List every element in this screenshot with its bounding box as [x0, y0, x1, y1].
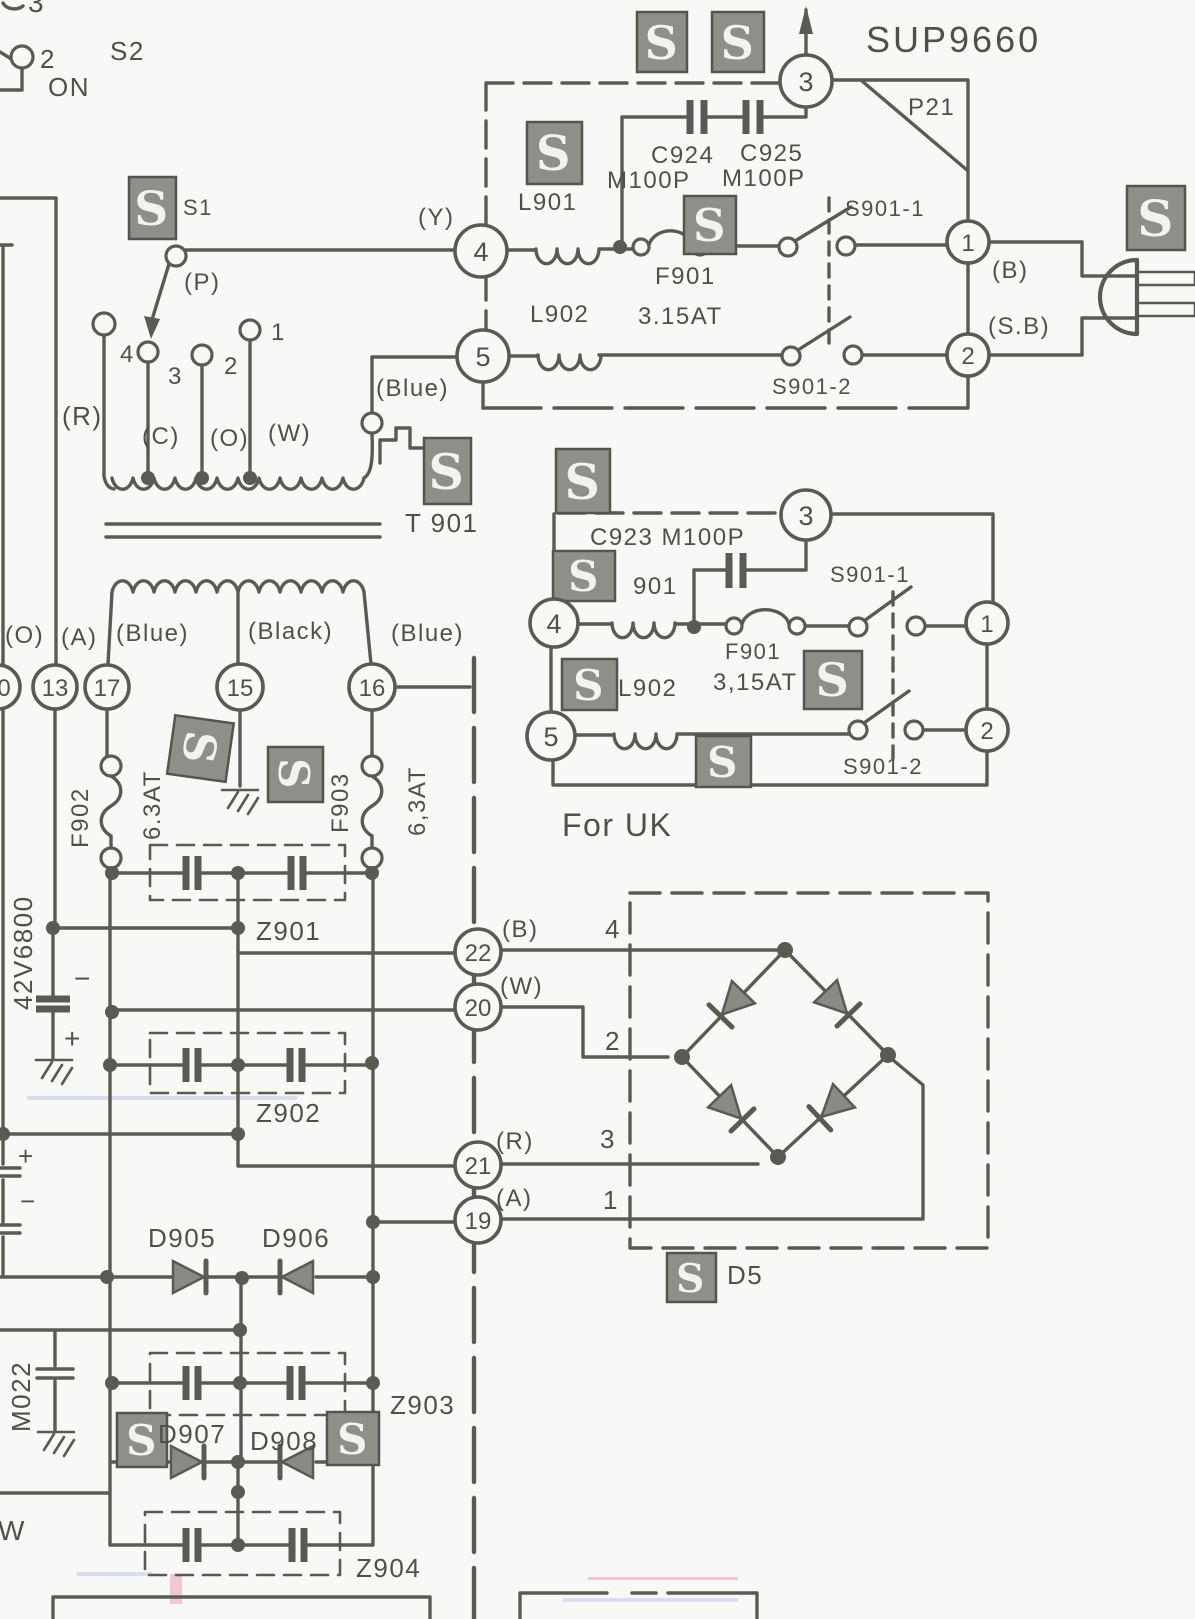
svg-text:S: S — [721, 16, 756, 70]
f903-rating: 6,3AT — [404, 766, 431, 836]
mains-plug-icon — [1100, 260, 1137, 334]
d908-label: D908 — [250, 1426, 318, 1456]
s-badge: S — [696, 736, 751, 787]
sb-wire-label: (S.B) — [988, 313, 1050, 340]
f903-terminal — [362, 756, 382, 776]
uk-s901-1-label: S901-1 — [830, 562, 910, 587]
tap3-label: 3 — [168, 363, 183, 390]
bridge-b-label: (B) — [502, 916, 539, 943]
c924-label: C924 — [651, 142, 714, 169]
svg-text:S: S — [645, 16, 680, 70]
d907-diode-icon — [171, 1446, 204, 1478]
bridge-wires — [500, 950, 923, 1219]
s-badge: S — [712, 12, 764, 72]
f902-rating: 6.3AT — [139, 770, 166, 840]
c925-value: M100P — [722, 165, 806, 192]
s-badge: S — [637, 12, 687, 72]
cap-plus-label: + — [64, 1023, 82, 1054]
s-badge: S — [553, 551, 615, 601]
svg-text:S: S — [568, 552, 600, 601]
bridge-t2-label: 2 — [605, 1026, 621, 1056]
s-badge: S — [562, 659, 617, 710]
switch-contact — [849, 721, 867, 739]
bridge-t1-label: 1 — [603, 1185, 619, 1215]
svg-text:S: S — [171, 728, 226, 768]
uk-pin4: 4 — [546, 609, 561, 639]
p-wire-label: (P) — [184, 269, 221, 296]
switch-contact — [907, 617, 925, 635]
sec-pin16: 16 — [359, 675, 386, 702]
m022-label: M022 — [6, 1361, 36, 1432]
switch-contact — [844, 346, 862, 364]
mains-pin2: 2 — [961, 343, 974, 370]
switch-contact — [782, 347, 800, 365]
d906-diode-icon — [280, 1261, 313, 1293]
tap-terminal-4 — [138, 342, 158, 362]
uk-f901-rating: 3,15AT — [713, 669, 798, 696]
scan-artifact — [170, 1574, 182, 1604]
f902-terminal — [101, 756, 121, 776]
svg-text:S: S — [565, 453, 602, 511]
o-wire-label: (O) — [210, 425, 249, 452]
d906-label: D906 — [262, 1223, 330, 1253]
tap2-label: 2 — [224, 353, 239, 380]
tap-terminal-3 — [192, 345, 212, 365]
mains-pin4: 4 — [473, 237, 488, 267]
uk-l902-label: L902 — [618, 675, 677, 702]
primary-end-terminal — [362, 413, 382, 433]
sec-blue-right-label: (Blue) — [391, 620, 464, 647]
uk-l901-label: 901 — [633, 573, 678, 600]
s901-1-label: S901-1 — [845, 196, 925, 221]
d5-label: D5 — [727, 1260, 763, 1290]
w-wire-label-bottom: W — [0, 1515, 26, 1546]
switch-contact — [849, 618, 867, 636]
f903-terminal — [362, 848, 382, 868]
left-plus-label: + — [18, 1141, 35, 1171]
s-badge: S — [327, 1412, 379, 1465]
y-wire-label: (Y) — [418, 204, 455, 231]
sec-pin17: 17 — [94, 675, 121, 702]
mains-pin1: 1 — [961, 230, 974, 257]
coil-tap-dot — [141, 471, 155, 485]
plug-prong — [1137, 272, 1195, 285]
f901-label: F901 — [655, 263, 716, 290]
d905-label: D905 — [148, 1223, 216, 1253]
s1-label: S1 — [183, 195, 213, 220]
uk-c923-label: C923 M100P — [590, 524, 745, 551]
sec-blue-left-label: (Blue) — [116, 620, 189, 647]
fuse-terminal — [789, 618, 805, 634]
b-wire-label: (B) — [992, 257, 1029, 284]
t901-label: T 901 — [405, 508, 479, 538]
uk-pin3: 3 — [798, 501, 813, 531]
w-wire-label: (W) — [268, 420, 311, 447]
s901-2-label: S901-2 — [772, 374, 852, 399]
bridge-box — [630, 893, 988, 1248]
s-badge: S — [424, 438, 471, 504]
d907-label: D907 — [158, 1419, 226, 1449]
z901-label: Z901 — [256, 916, 321, 946]
svg-text:S: S — [126, 1416, 158, 1465]
bridge-pin20: 20 — [465, 995, 492, 1022]
bridge-a-label: (A) — [496, 1185, 533, 1212]
switch-contact — [837, 237, 855, 255]
svg-text:S: S — [707, 738, 739, 787]
sec-pin15: 15 — [227, 675, 254, 702]
s-badge: S — [684, 196, 736, 254]
cap-42v6800-plates — [36, 999, 70, 1009]
c925-label: C925 — [740, 140, 803, 167]
bridge-pin22: 22 — [465, 940, 492, 967]
cap-42v6800-label: 42V6800 — [8, 895, 38, 1010]
plug-prong — [1137, 303, 1195, 316]
arrow-up-icon — [799, 6, 813, 34]
svg-text:S: S — [693, 199, 727, 252]
fuse-terminal — [726, 618, 742, 634]
svg-text:S: S — [337, 1415, 369, 1464]
blue-wire-label: (Blue) — [376, 375, 449, 402]
s-badge: S — [167, 715, 234, 782]
bridge-pin21: 21 — [465, 1153, 492, 1180]
s-badge: S — [129, 177, 176, 239]
s2-label: S2 — [110, 36, 145, 66]
z903-label: Z903 — [390, 1390, 455, 1420]
c-wire-label: (C) — [142, 423, 180, 450]
for-uk-title: For UK — [562, 807, 672, 843]
f903-label: F903 — [327, 772, 354, 833]
mains-pin3: 3 — [798, 67, 813, 97]
scan-artifact — [588, 1577, 738, 1580]
p21-label: P21 — [908, 94, 955, 121]
tap1-label: 1 — [271, 319, 286, 346]
partial-pin-label: 3 — [28, 0, 45, 18]
uk-pin1: 1 — [980, 611, 993, 638]
model-label: SUP9660 — [866, 19, 1041, 60]
r-wire-label: (R) — [62, 401, 103, 431]
on-label: ON — [48, 72, 90, 102]
ground-icon — [36, 790, 258, 1456]
bridge-t4-label: 4 — [605, 914, 621, 944]
tap4-label: 4 — [120, 341, 135, 368]
sec-pin0: 0 — [0, 675, 11, 702]
bridge-pin19: 19 — [465, 1208, 492, 1235]
fuse-terminal — [633, 239, 649, 255]
schematic-page: S S S S S S S S S S S S S S S S S 3 4 5 … — [0, 0, 1195, 1619]
tap-terminal-r — [93, 313, 115, 335]
bottom-partial-boxes — [53, 1593, 757, 1619]
tap-terminal-1 — [240, 320, 260, 340]
svg-text:S: S — [1137, 189, 1175, 248]
sec-o-label: (O) — [5, 622, 44, 649]
cap-minus-label: − — [74, 963, 92, 994]
s-badge: S — [804, 651, 862, 709]
s-badge: S — [268, 747, 323, 802]
bridge-node-dots — [674, 942, 896, 1165]
sec-black-label: (Black) — [248, 618, 333, 645]
schematic-canvas: S S S S S S S S S S S S S S S S S 3 4 5 … — [0, 0, 1195, 1619]
z904-label: Z904 — [356, 1553, 421, 1583]
l901-label: L901 — [518, 189, 577, 216]
s1-pivot — [166, 246, 186, 266]
junction-dot — [687, 620, 701, 634]
uk-pin5: 5 — [543, 722, 558, 752]
svg-text:S: S — [573, 661, 605, 710]
svg-text:S: S — [536, 126, 572, 182]
junction-dot — [613, 240, 627, 254]
sec-a-label: (A) — [61, 624, 98, 651]
f902-terminal — [101, 848, 121, 868]
s2-terminal — [11, 46, 33, 68]
s-badge: S — [527, 122, 582, 184]
left-minus-label: − — [20, 1186, 37, 1216]
uk-s901-2-label: S901-2 — [843, 754, 923, 779]
f901-rating: 3.15AT — [638, 303, 723, 330]
bridge-t3-label: 3 — [600, 1124, 616, 1154]
f902-label: F902 — [67, 787, 94, 848]
svg-text:S: S — [134, 182, 169, 237]
s-badge: S — [1127, 186, 1185, 250]
bridge-w-label: (W) — [500, 973, 543, 1000]
s-badge: S — [667, 1253, 716, 1302]
scan-artifact — [77, 1572, 152, 1576]
l902-label: L902 — [530, 301, 589, 328]
switch-contact — [779, 238, 797, 256]
svg-text:S: S — [269, 758, 318, 790]
coil-tap-dot — [195, 471, 209, 485]
switch-contact — [905, 721, 923, 739]
d905-diode-icon — [173, 1261, 206, 1293]
coil-tap-dot — [243, 471, 257, 485]
svg-text:S: S — [429, 443, 466, 501]
sec-pin13: 13 — [42, 675, 69, 702]
uk-pin2: 2 — [980, 718, 993, 745]
s-badge: S — [556, 449, 610, 513]
z902-label: Z902 — [256, 1098, 321, 1128]
scan-artifact — [563, 1598, 738, 1602]
bridge-r-label: (R) — [496, 1128, 534, 1155]
uk-f901-label: F901 — [725, 639, 781, 664]
pin2-label: 2 — [40, 44, 56, 74]
svg-text:S: S — [816, 653, 851, 707]
mains-pin5: 5 — [475, 342, 490, 372]
s1-arrow-icon — [144, 316, 160, 339]
c924-value: M100P — [607, 167, 691, 194]
svg-text:S: S — [676, 1256, 706, 1302]
